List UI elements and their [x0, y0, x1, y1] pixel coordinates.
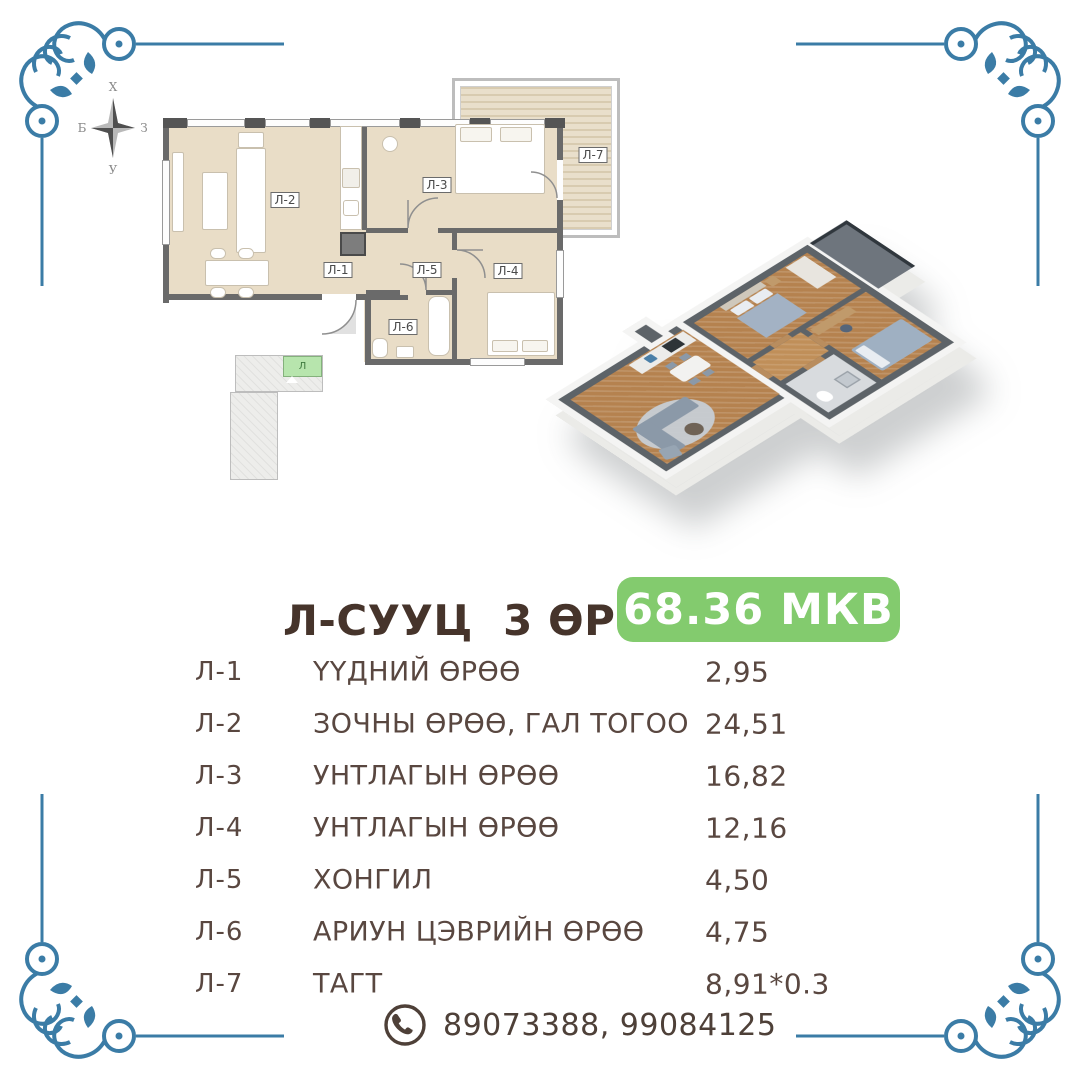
compass-rose: Х З У Б — [77, 78, 149, 178]
room-code: Л-5 — [195, 865, 243, 895]
compass-north-label: Х — [109, 80, 118, 94]
phone-icon — [383, 1003, 427, 1047]
table-row: Л-3 УНТЛАГЫН ӨРӨӨ 16,82 — [195, 750, 875, 802]
compass-east-label: З — [140, 121, 147, 135]
room-code: Л-1 — [195, 657, 243, 687]
room-code: Л-4 — [195, 813, 243, 843]
compass-south-label: У — [109, 163, 118, 177]
keyplan-wing-vertical — [230, 392, 278, 480]
table-row: Л-5 ХОНГИЛ 4,50 — [195, 854, 875, 906]
keyplan-unit-highlight: Л — [283, 356, 322, 377]
room-area: 16,82 — [705, 760, 788, 793]
room-label-chip: Л-6 — [389, 319, 418, 335]
room-label-chip: Л-2 — [271, 192, 300, 208]
compass-west-label: Б — [78, 121, 87, 135]
phone-numbers: 89073388, 99084125 — [443, 1008, 776, 1043]
room-area: 24,51 — [705, 708, 788, 741]
table-row: Л-6 АРИУН ЦЭВРИЙН ӨРӨӨ 4,75 — [195, 906, 875, 958]
room-name: УНТЛАГЫН ӨРӨӨ — [313, 813, 559, 844]
keyplan-marker — [286, 376, 298, 383]
room-name: ХОНГИЛ — [313, 865, 432, 896]
table-row: Л-4 УНТЛАГЫН ӨРӨӨ 12,16 — [195, 802, 875, 854]
room-label-chip: Л-1 — [324, 262, 353, 278]
room-name: ТАГТ — [313, 969, 383, 1000]
room-code: Л-7 — [195, 969, 243, 999]
rooms-table: Л-1 ҮҮДНИЙ ӨРӨӨ 2,95 Л-2 ЗОЧНЫ ӨРӨӨ, ГАЛ… — [195, 646, 875, 1010]
room-name: ЗОЧНЫ ӨРӨӨ, ГАЛ ТОГОО — [313, 709, 689, 740]
room-area: 4,50 — [705, 864, 769, 897]
isometric-3d-render — [540, 140, 1020, 580]
room-area: 2,95 — [705, 656, 769, 689]
room-code: Л-6 — [195, 917, 243, 947]
keyplan-unit-label: Л — [299, 361, 307, 372]
room-area: 12,16 — [705, 812, 788, 845]
room-name: АРИУН ЦЭВРИЙН ӨРӨӨ — [313, 917, 644, 948]
room-name: ҮҮДНИЙ ӨРӨӨ — [313, 657, 521, 688]
room-area: 8,91*0.3 — [705, 968, 830, 1001]
room-code: Л-2 — [195, 709, 243, 739]
room-name: УНТЛАГЫН ӨРӨӨ — [313, 761, 559, 792]
poster-canvas: Х З У Б — [0, 0, 1080, 1080]
room-label-chip: Л-5 — [413, 262, 442, 278]
table-row: Л-2 ЗОЧНЫ ӨРӨӨ, ГАЛ ТОГОО 24,51 — [195, 698, 875, 750]
room-area: 4,75 — [705, 916, 769, 949]
contact-row: 89073388, 99084125 — [383, 1002, 776, 1048]
room-label-chip: Л-3 — [423, 177, 452, 193]
area-badge: 68.36 МКВ — [617, 577, 900, 642]
room-code: Л-3 — [195, 761, 243, 791]
table-row: Л-1 ҮҮДНИЙ ӨРӨӨ 2,95 — [195, 646, 875, 698]
compass-star — [91, 98, 135, 158]
room-label-chip: Л-4 — [494, 263, 523, 279]
